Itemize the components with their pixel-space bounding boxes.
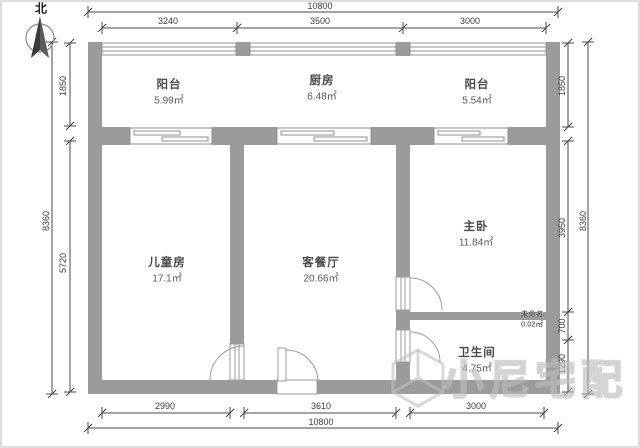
dim-top-seg-3: 3000 [460,16,480,26]
dim-right-seg-2: 3950 [557,218,567,238]
wall-living-master [396,145,410,277]
wall-bottom-left [88,380,277,394]
room-area-kids-room: 17.1㎡ [152,270,181,285]
dim-top-seg-1: 3240 [158,16,178,26]
sliding-door-balcony-left [130,128,212,144]
dim-left-overall: 8360 [41,211,51,231]
pillar-top-1 [236,42,250,56]
room-area-living-dining: 20.66㎡ [303,270,338,285]
door-arc-entry [286,350,318,382]
door-leaf-entry [278,348,286,381]
compass-needle-icon [26,16,54,58]
window-kitchen [250,43,396,55]
room-area-kitchen: 6.48㎡ [307,88,336,103]
wall-junction [396,310,410,330]
room-name-living-dining: 客餐厅 [302,254,340,270]
sliding-doors [130,128,508,144]
dim-right-overall: 8360 [578,211,588,231]
floor-plan: 北 阳台 5.99㎡ 厨房 6.48㎡ 阳台 5.54㎡ 儿童房 17.1㎡ 客… [0,0,640,448]
dim-bottom-seg-2: 3610 [311,401,331,411]
window-balcony-right [410,43,546,55]
room-name-balcony-right: 阳台 [465,76,490,92]
north-label: 北 [35,0,47,17]
dim-top-overall: 10800 [307,1,332,11]
sliding-door-balcony-right [434,128,508,144]
room-name-kitchen: 厨房 [310,72,335,88]
dim-top-seg-2: 3500 [310,16,330,26]
wall-mid-c [371,127,434,145]
windows [102,43,546,55]
door-arc-bathroom [410,332,440,362]
dim-bottom-overall: 10800 [308,417,333,427]
wall-living-bath [396,362,410,380]
door-leaf-master [396,277,410,310]
door-leaf-kids [230,344,244,380]
room-area-unnamed: 0.02㎡ [521,319,543,330]
window-balcony-left [102,43,236,55]
door-arc-master [410,278,442,310]
wall-mid-d [508,127,560,145]
room-name-kids-room: 儿童房 [148,254,186,270]
room-name-balcony-left: 阳台 [157,76,182,92]
pillar-top-2 [396,42,410,56]
dim-right-seg-1: 1850 [557,76,567,96]
room-area-master: 11.84㎡ [459,234,493,249]
dim-left-seg-1: 1850 [58,76,68,96]
dim-left-seg-2: 5720 [58,253,68,273]
wall-mid-b [212,127,277,145]
room-name-master: 主卧 [464,218,489,234]
dim-bottom-seg-1: 2990 [155,401,175,411]
room-area-balcony-right: 5.54㎡ [462,92,491,107]
sliding-door-kitchen [277,128,371,144]
wall-mid-a [88,127,130,145]
dim-right-seg-3: 700 [557,318,567,333]
wall-left [88,42,102,394]
wall-kids-living [230,145,244,344]
door-opening-entry [277,380,317,394]
watermark-text: 小尼宅配 [443,360,627,401]
room-area-balcony-left: 5.99㎡ [154,92,183,107]
